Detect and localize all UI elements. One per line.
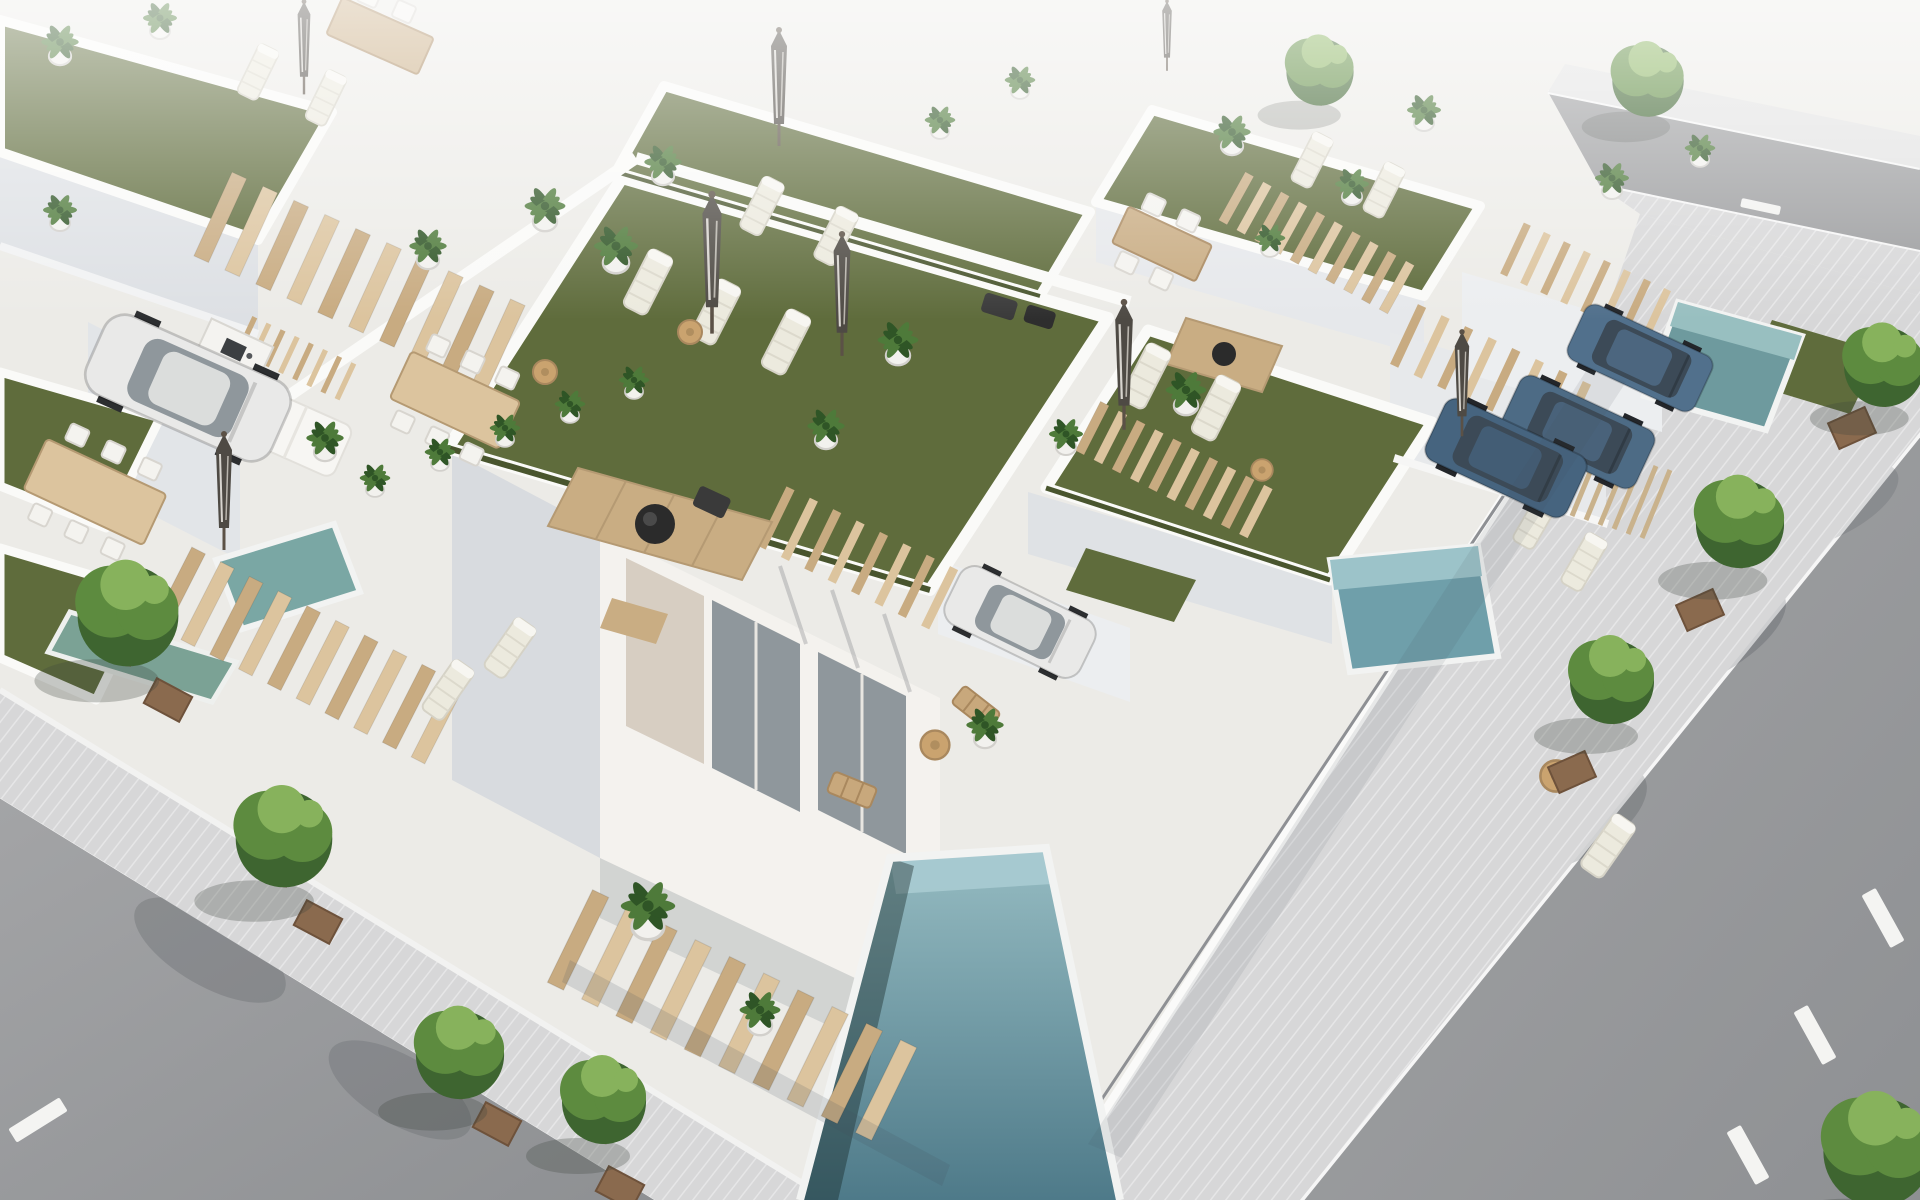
- render-viewport: Aerial 3D architectural rendering of a m…: [0, 0, 1920, 1200]
- aerial-villa-render: [0, 0, 1920, 1200]
- side-table: [921, 731, 950, 760]
- side-table: [533, 360, 557, 384]
- side-table: [678, 320, 702, 344]
- side-table: [1251, 459, 1273, 481]
